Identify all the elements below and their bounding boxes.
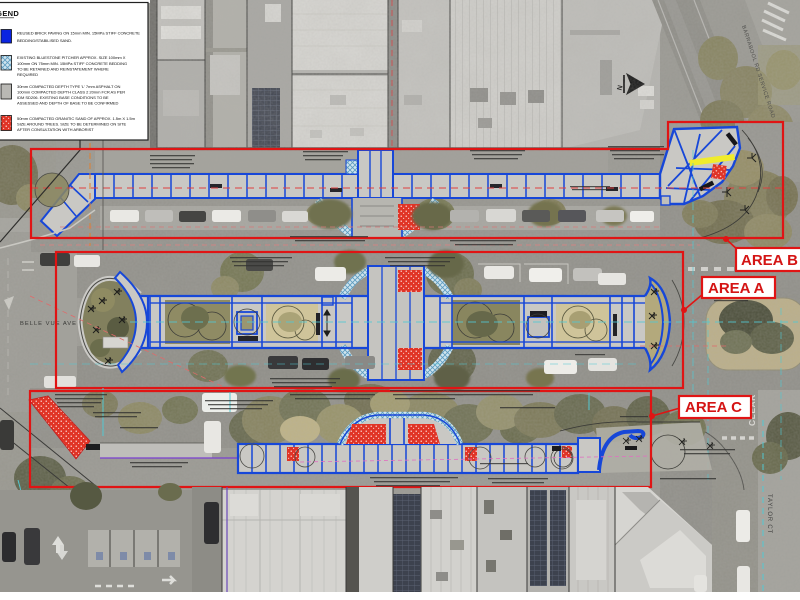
svg-text:SIZE AROUND TREES. SIZE TO BE: SIZE AROUND TREES. SIZE TO BE DETERMINED…: [17, 122, 126, 127]
svg-text:LEGEND: LEGEND: [0, 9, 19, 18]
svg-text:30mm COMPACTED DEPTH TYPE 'L': 30mm COMPACTED DEPTH TYPE 'L' 7mm ASPHAL…: [17, 84, 121, 89]
svg-text:ASSESSED AND DEPTH OF BASE TO: ASSESSED AND DEPTH OF BASE TO BE CONFIRM…: [17, 101, 119, 106]
svg-text:AREA B: AREA B: [741, 252, 798, 269]
svg-text:100mm ON 75mm MIN. 15MPa STIFF: 100mm ON 75mm MIN. 15MPa STIFF CONCRETE …: [17, 61, 127, 66]
svg-text:BELLE VUE AVE: BELLE VUE AVE: [20, 321, 77, 327]
svg-text:IDM SD206. EXISTING BASE CONDI: IDM SD206. EXISTING BASE CONDITIONS TO B…: [17, 95, 109, 100]
svg-text:TO BE RETAINED AND REINSTATEME: TO BE RETAINED AND REINSTATEMENT WHERE: [17, 67, 109, 72]
svg-text:50mm COMPACTED GRANITIC SAND O: 50mm COMPACTED GRANITIC SAND OF APPROX. …: [17, 116, 136, 121]
svg-text:AREA A: AREA A: [708, 280, 765, 297]
svg-text:BEDDING/STABILISED SAND.: BEDDING/STABILISED SAND.: [17, 38, 72, 43]
svg-text:EXISTING BLUESTONE PITCHER APP: EXISTING BLUESTONE PITCHER APPROX. SIZE …: [17, 55, 126, 60]
svg-text:AFTER CONSULTATION WITH ARBORI: AFTER CONSULTATION WITH ARBORIST: [17, 127, 94, 132]
svg-text:100mm COMPACTED DEPTH CLASS 2: 100mm COMPACTED DEPTH CLASS 2 20mm FCR A…: [17, 90, 125, 95]
svg-text:AREA C: AREA C: [685, 399, 742, 416]
svg-text:REUSED BRICK PAVING ON 15mm MI: REUSED BRICK PAVING ON 15mm MIN. 15MPa S…: [17, 31, 140, 36]
svg-text:REQUIRED: REQUIRED: [17, 72, 38, 77]
